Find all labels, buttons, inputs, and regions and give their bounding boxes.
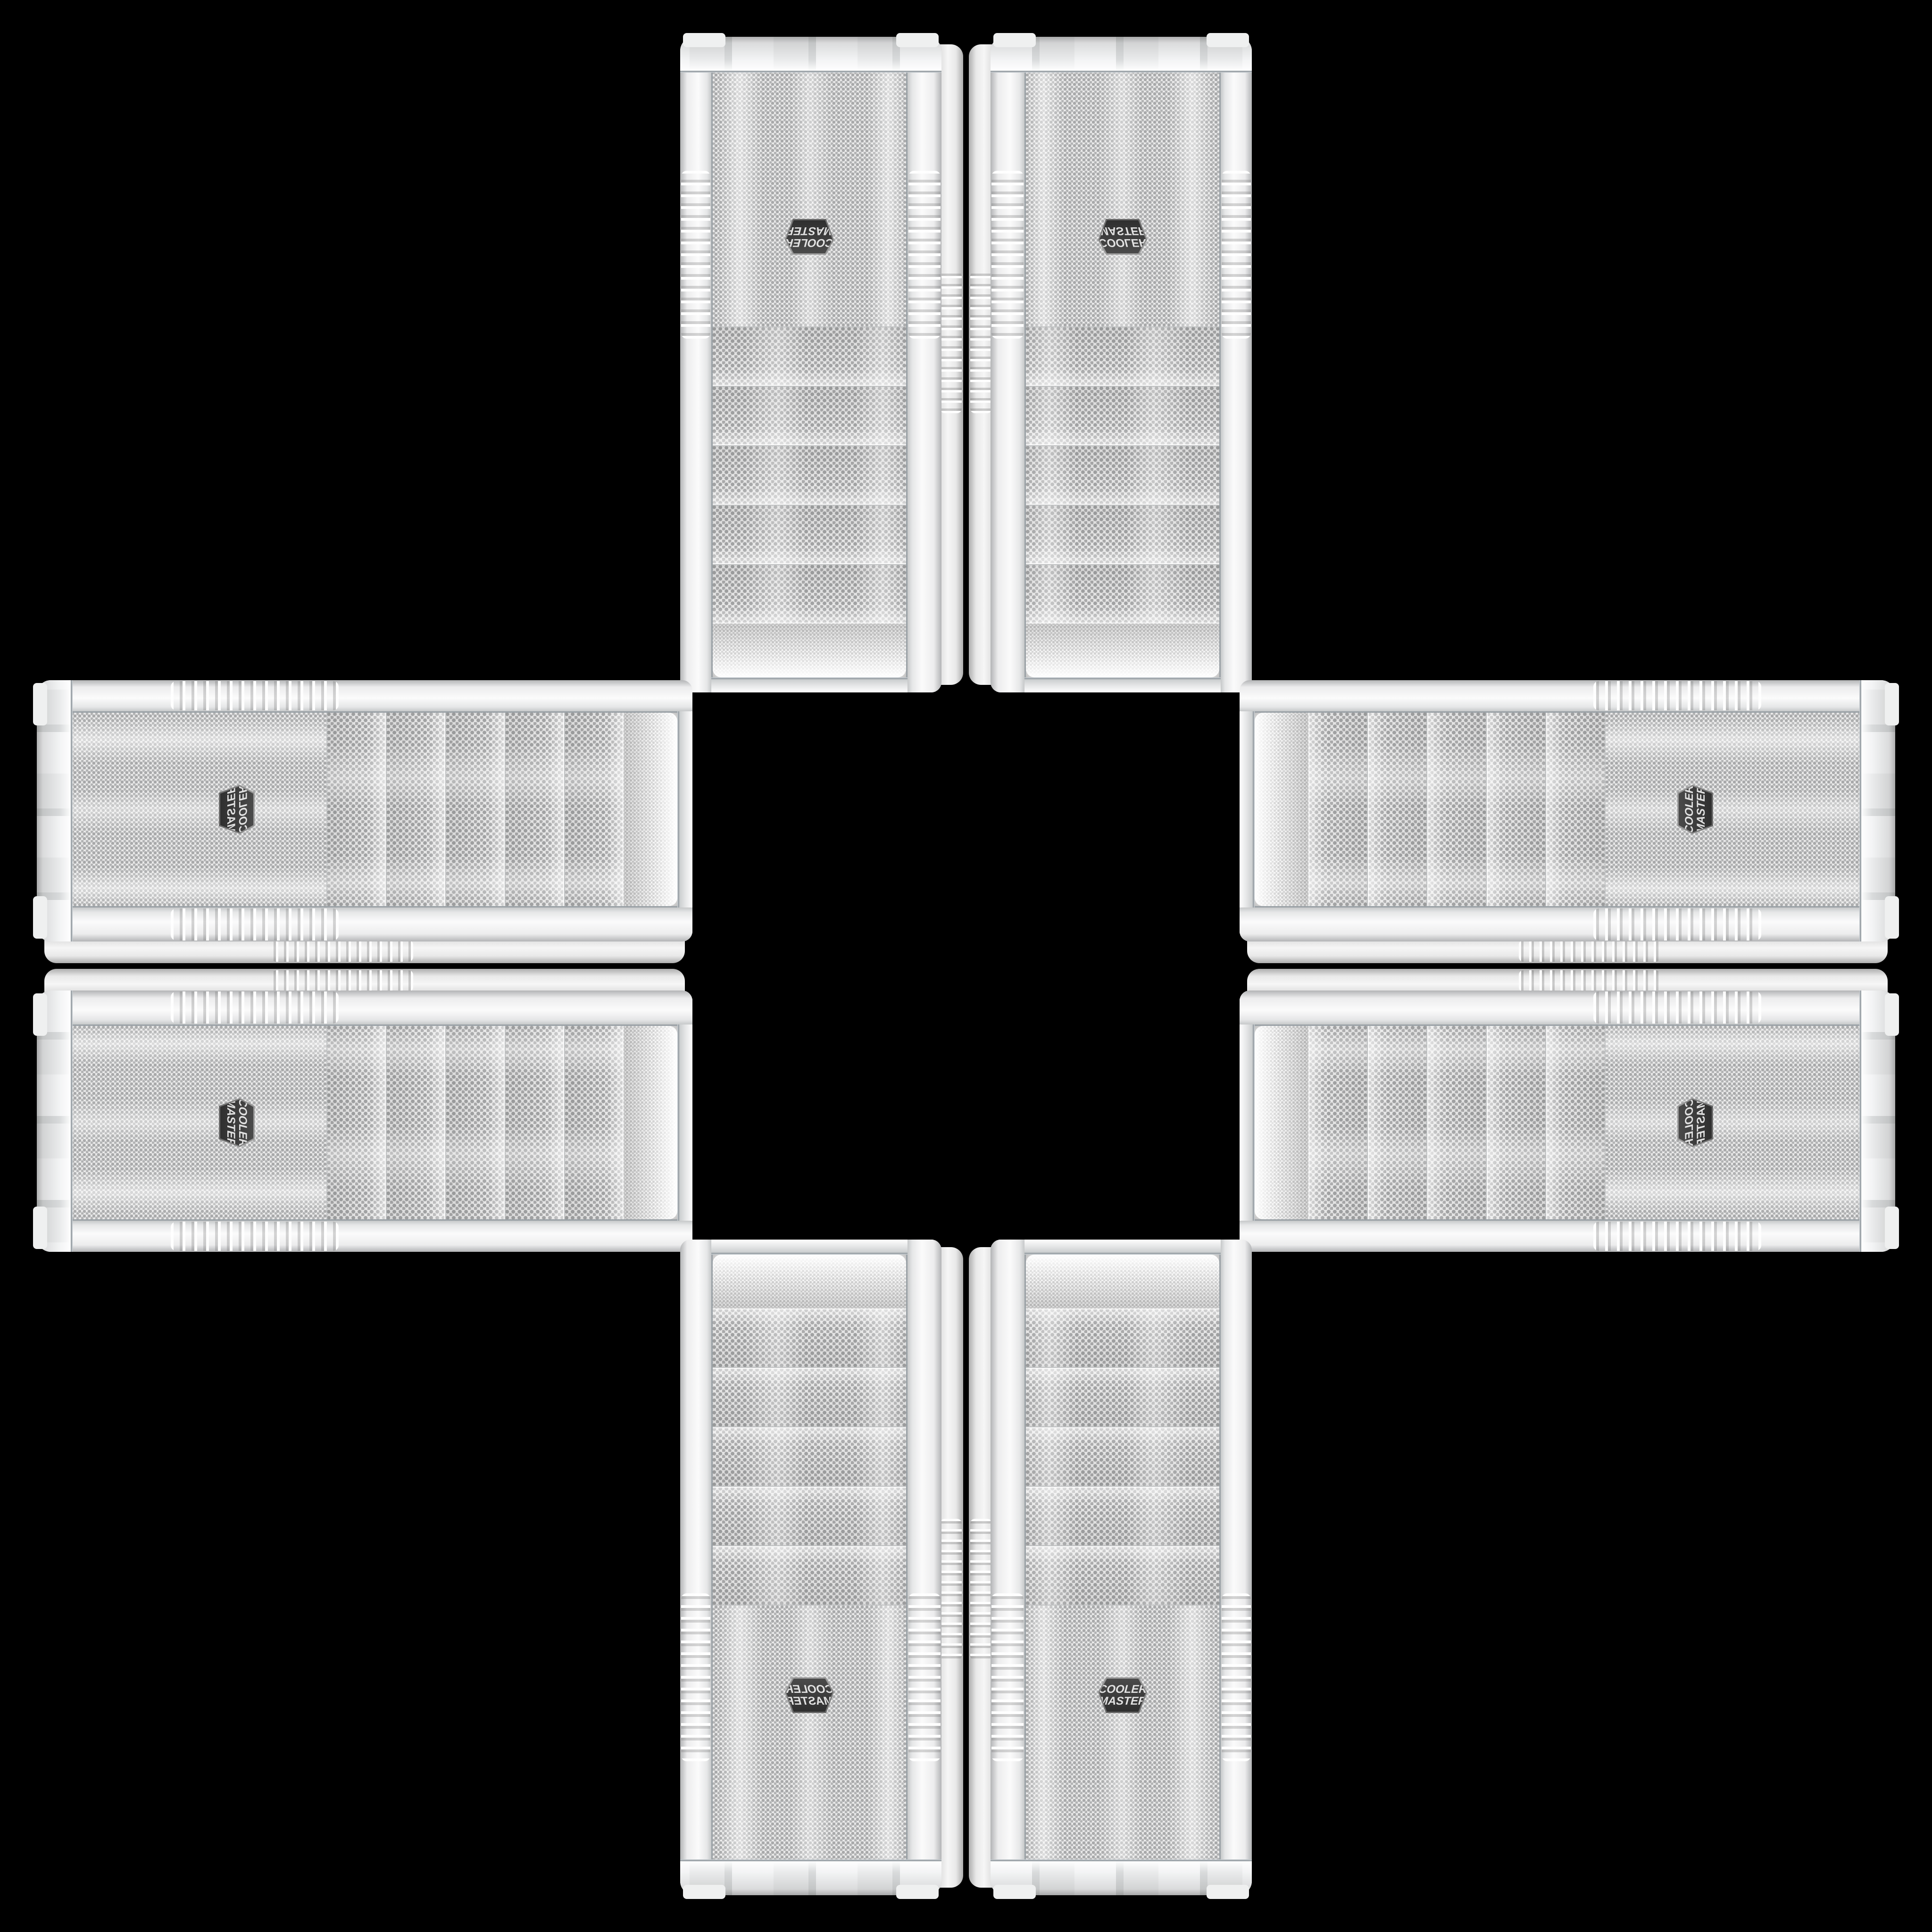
- rail-grip-ribs: [908, 1593, 941, 1761]
- pc-case-right-top: COOLER MASTER: [1240, 680, 1895, 963]
- drive-bay-cover: [1546, 713, 1606, 906]
- bezel-rail-left: [37, 991, 692, 1024]
- logo-line-2: MASTER: [1098, 225, 1147, 237]
- logo-line-2: MASTER: [225, 1098, 237, 1147]
- chrome-trim-top: [680, 677, 941, 679]
- mesh-curved-top: [713, 624, 906, 677]
- drive-bay-cover: [1368, 713, 1427, 906]
- logo-line-1: COOLER: [237, 1098, 249, 1147]
- case-front-bezel: COOLER MASTER: [37, 680, 692, 941]
- front-mesh-panel: COOLER MASTER: [1024, 1255, 1221, 1859]
- rail-grip-ribs: [171, 1222, 339, 1251]
- bezel-rail-left: [37, 908, 692, 941]
- drive-bay-covers: [1308, 713, 1606, 906]
- cooler-master-logo-badge: COOLER MASTER: [219, 1098, 255, 1147]
- drive-bay-cover: [445, 1026, 505, 1219]
- side-chevron-grip: [1519, 970, 1660, 992]
- case-foot-left: [1885, 993, 1899, 1036]
- drive-bay-cover: [1026, 386, 1219, 445]
- drive-bay-cover: [713, 1427, 906, 1487]
- rail-grip-ribs: [171, 991, 339, 1024]
- drive-bay-cover: [713, 564, 906, 624]
- drive-bay-cover: [713, 1487, 906, 1546]
- drive-bay-cover: [713, 505, 906, 564]
- drive-bay-cover: [713, 445, 906, 505]
- bezel-rail-left: [1240, 908, 1895, 941]
- drive-bay-covers: [1026, 1308, 1219, 1606]
- bezel-rail-right: [37, 1221, 692, 1252]
- case-side-sliver: [969, 1247, 993, 1888]
- case-side-sliver: [1247, 969, 1888, 993]
- case-front-bezel: COOLER MASTER: [37, 991, 692, 1252]
- front-mesh-panel: COOLER MASTER: [73, 711, 677, 908]
- drive-bay-cover: [1026, 326, 1219, 386]
- drive-bay-covers: [713, 326, 906, 624]
- case-foot-right: [1885, 1207, 1899, 1249]
- case-foot-left: [33, 993, 47, 1036]
- chrome-trim-bottom: [71, 991, 73, 1252]
- case-top-cap: [1240, 680, 1253, 941]
- bezel-rail-right: [680, 37, 711, 692]
- rail-grip-ribs: [1593, 908, 1761, 941]
- case-side-sliver: [44, 969, 685, 993]
- rail-grip-ribs: [1222, 171, 1251, 339]
- rail-grip-ribs: [1593, 681, 1761, 710]
- drive-bay-cover: [564, 713, 624, 906]
- drive-bay-cover: [326, 1026, 386, 1219]
- rail-grip-ribs: [171, 908, 339, 941]
- chrome-trim-top: [991, 677, 1252, 679]
- drive-bay-cover: [1308, 713, 1368, 906]
- logo-line-1: COOLER: [237, 785, 249, 834]
- pc-case-bottom-left: COOLER MASTER: [680, 1240, 963, 1895]
- drive-bay-cover: [1026, 1427, 1219, 1487]
- bezel-rail-left: [1240, 991, 1895, 1024]
- case-side-sliver: [1247, 939, 1888, 963]
- side-chevron-grip: [970, 272, 992, 413]
- mesh-curved-top: [624, 713, 677, 906]
- drive-bay-cover: [1026, 1368, 1219, 1427]
- drive-bay-cover: [1026, 1308, 1219, 1368]
- drive-bay-cover: [564, 1026, 624, 1219]
- logo-line-1: COOLER: [1683, 785, 1695, 834]
- drive-bay-cover: [1427, 1026, 1487, 1219]
- case-foot-right: [1885, 683, 1899, 725]
- pc-case-top-left: COOLER MASTER: [680, 37, 963, 692]
- case-top-cap: [679, 991, 692, 1252]
- fan-intake-mesh: COOLER MASTER: [1026, 73, 1219, 326]
- rail-grip-ribs: [681, 171, 710, 339]
- fan-intake-mesh: COOLER MASTER: [73, 713, 326, 906]
- case-side-sliver: [969, 44, 993, 685]
- drive-bay-cover: [386, 1026, 445, 1219]
- rail-grip-ribs: [991, 1593, 1024, 1761]
- cooler-master-logo-badge: COOLER MASTER: [785, 1677, 834, 1713]
- drive-bay-cover: [1308, 1026, 1368, 1219]
- pc-case-left-bottom: COOLER MASTER: [37, 969, 692, 1252]
- side-chevron-grip: [940, 1519, 962, 1660]
- case-front-bezel: COOLER MASTER: [991, 1240, 1252, 1895]
- case-foot-right: [33, 683, 47, 725]
- bezel-rail-right: [1221, 1240, 1252, 1895]
- logo-line-2: MASTER: [785, 225, 833, 237]
- fan-intake-mesh: COOLER MASTER: [1606, 1026, 1859, 1219]
- drive-bay-cover: [1427, 713, 1487, 906]
- drive-bay-covers: [326, 713, 624, 906]
- case-foot-right: [683, 1885, 725, 1899]
- bezel-rail-right: [37, 680, 692, 711]
- side-chevron-grip: [940, 272, 962, 413]
- cooler-master-logo-badge: COOLER MASTER: [1098, 1677, 1147, 1713]
- case-foot-left: [33, 896, 47, 939]
- case-top-cap: [1240, 991, 1253, 1252]
- mesh-curved-top: [624, 1026, 677, 1219]
- drive-bay-cover: [1546, 1026, 1606, 1219]
- drive-bay-cover: [1026, 564, 1219, 624]
- front-mesh-panel: COOLER MASTER: [1255, 1024, 1859, 1221]
- fan-intake-mesh: COOLER MASTER: [713, 1606, 906, 1859]
- drive-bay-cover: [1026, 1546, 1219, 1606]
- cooler-master-logo-text: COOLER MASTER: [786, 1679, 833, 1712]
- case-front-bezel: COOLER MASTER: [680, 1240, 941, 1895]
- cooler-master-logo-text: COOLER MASTER: [1099, 220, 1146, 253]
- front-mesh-panel: COOLER MASTER: [711, 73, 908, 677]
- drive-bay-covers: [713, 1308, 906, 1606]
- logo-line-2: MASTER: [1695, 1098, 1707, 1147]
- side-chevron-grip: [272, 970, 413, 992]
- drive-bay-covers: [1308, 1026, 1606, 1219]
- drive-bay-cover: [1368, 1026, 1427, 1219]
- rail-grip-ribs: [908, 171, 941, 339]
- pc-case-bottom-right: COOLER MASTER: [969, 1240, 1252, 1895]
- logo-line-1: COOLER: [1098, 237, 1147, 249]
- logo-line-1: COOLER: [785, 1683, 834, 1695]
- chrome-trim-top: [677, 991, 679, 1252]
- drive-bay-cover: [713, 1546, 906, 1606]
- rail-grip-ribs: [1222, 1593, 1251, 1761]
- side-chevron-grip: [1519, 940, 1660, 962]
- logo-line-1: COOLER: [785, 237, 834, 249]
- cooler-master-logo-badge: COOLER MASTER: [1677, 785, 1713, 834]
- bezel-rail-left: [991, 1240, 1024, 1895]
- case-foot-right: [1207, 1885, 1249, 1899]
- pc-case-right-bottom: COOLER MASTER: [1240, 969, 1895, 1252]
- drive-bay-cover: [1026, 505, 1219, 564]
- case-foot-right: [33, 1207, 47, 1249]
- bezel-rail-left: [991, 37, 1024, 692]
- drive-bay-cover: [505, 1026, 564, 1219]
- cooler-master-logo-text: COOLER MASTER: [220, 1099, 253, 1146]
- rail-grip-ribs: [1593, 991, 1761, 1024]
- fan-intake-mesh: COOLER MASTER: [1026, 1606, 1219, 1859]
- case-side-sliver: [44, 939, 685, 963]
- case-front-bezel: COOLER MASTER: [680, 37, 941, 692]
- drive-bay-covers: [326, 1026, 624, 1219]
- drive-bay-cover: [713, 1368, 906, 1427]
- mesh-curved-top: [1255, 713, 1308, 906]
- case-foot-left: [896, 1885, 939, 1899]
- mesh-curved-top: [1026, 624, 1219, 677]
- bezel-rail-left: [908, 37, 941, 692]
- logo-line-1: COOLER: [1683, 1098, 1695, 1147]
- mesh-curved-top: [1255, 1026, 1308, 1219]
- case-foot-left: [896, 33, 939, 47]
- front-mesh-panel: COOLER MASTER: [73, 1024, 677, 1221]
- cooler-master-logo-badge: COOLER MASTER: [219, 785, 255, 834]
- case-front-bezel: COOLER MASTER: [1240, 991, 1895, 1252]
- side-chevron-grip: [272, 940, 413, 962]
- drive-bay-cover: [1487, 1026, 1546, 1219]
- rail-grip-ribs: [991, 171, 1024, 339]
- front-mesh-panel: COOLER MASTER: [1255, 711, 1859, 908]
- case-top-cap: [679, 680, 692, 941]
- logo-line-2: MASTER: [225, 785, 237, 833]
- pc-case-left-top: COOLER MASTER: [37, 680, 692, 963]
- front-mesh-panel: COOLER MASTER: [711, 1255, 908, 1859]
- cooler-master-logo-text: COOLER MASTER: [1679, 1099, 1712, 1146]
- bezel-rail-right: [680, 1240, 711, 1895]
- drive-bay-cover: [386, 713, 445, 906]
- case-front-bezel: COOLER MASTER: [1240, 680, 1895, 941]
- bezel-rail-right: [1240, 1221, 1895, 1252]
- case-front-bezel: COOLER MASTER: [991, 37, 1252, 692]
- cooler-master-logo-text: COOLER MASTER: [220, 786, 253, 833]
- cooler-master-logo-text: COOLER MASTER: [1099, 1679, 1146, 1712]
- fan-intake-mesh: COOLER MASTER: [73, 1026, 326, 1219]
- case-foot-left: [1885, 896, 1899, 939]
- chrome-trim-bottom: [71, 680, 73, 941]
- bezel-rail-right: [1240, 680, 1895, 711]
- chrome-trim-top: [677, 680, 679, 941]
- case-side-sliver: [939, 44, 963, 685]
- drive-bay-cover: [445, 713, 505, 906]
- rail-grip-ribs: [171, 681, 339, 710]
- case-foot-left: [993, 1885, 1036, 1899]
- side-chevron-grip: [970, 1519, 992, 1660]
- fan-intake-mesh: COOLER MASTER: [1606, 713, 1859, 906]
- drive-bay-cover: [713, 386, 906, 445]
- case-top-cap: [680, 1240, 941, 1253]
- bezel-rail-left: [908, 1240, 941, 1895]
- logo-line-2: MASTER: [785, 1695, 833, 1707]
- cooler-master-logo-badge: COOLER MASTER: [1098, 219, 1147, 255]
- logo-line-1: COOLER: [1098, 1683, 1147, 1695]
- case-foot-left: [993, 33, 1036, 47]
- rail-grip-ribs: [1593, 1222, 1761, 1251]
- cooler-master-logo-badge: COOLER MASTER: [1677, 1098, 1713, 1147]
- chrome-trim-bottom: [680, 71, 941, 73]
- bezel-rail-right: [1221, 37, 1252, 692]
- chrome-trim-bottom: [991, 71, 1252, 73]
- product-collage-canvas: COOLER MASTER: [0, 0, 1932, 1932]
- drive-bay-cover: [1026, 1487, 1219, 1546]
- cooler-master-logo-text: COOLER MASTER: [1679, 786, 1712, 833]
- cooler-master-logo-badge: COOLER MASTER: [785, 219, 834, 255]
- cooler-master-logo-text: COOLER MASTER: [786, 220, 833, 253]
- drive-bay-covers: [1026, 326, 1219, 624]
- drive-bay-cover: [326, 713, 386, 906]
- logo-line-2: MASTER: [1098, 1695, 1147, 1707]
- mesh-curved-top: [713, 1255, 906, 1308]
- pc-case-top-right: COOLER MASTER: [969, 37, 1252, 692]
- front-mesh-panel: COOLER MASTER: [1024, 73, 1221, 677]
- drive-bay-cover: [1026, 445, 1219, 505]
- case-foot-right: [683, 33, 725, 47]
- drive-bay-cover: [1487, 713, 1546, 906]
- case-top-cap: [991, 679, 1252, 692]
- mesh-curved-top: [1026, 1255, 1219, 1308]
- case-foot-right: [1207, 33, 1249, 47]
- case-top-cap: [680, 679, 941, 692]
- drive-bay-cover: [713, 326, 906, 386]
- fan-intake-mesh: COOLER MASTER: [713, 73, 906, 326]
- drive-bay-cover: [505, 713, 564, 906]
- drive-bay-cover: [713, 1308, 906, 1368]
- case-top-cap: [991, 1240, 1252, 1253]
- case-side-sliver: [939, 1247, 963, 1888]
- logo-line-2: MASTER: [1695, 785, 1707, 833]
- rail-grip-ribs: [681, 1593, 710, 1761]
